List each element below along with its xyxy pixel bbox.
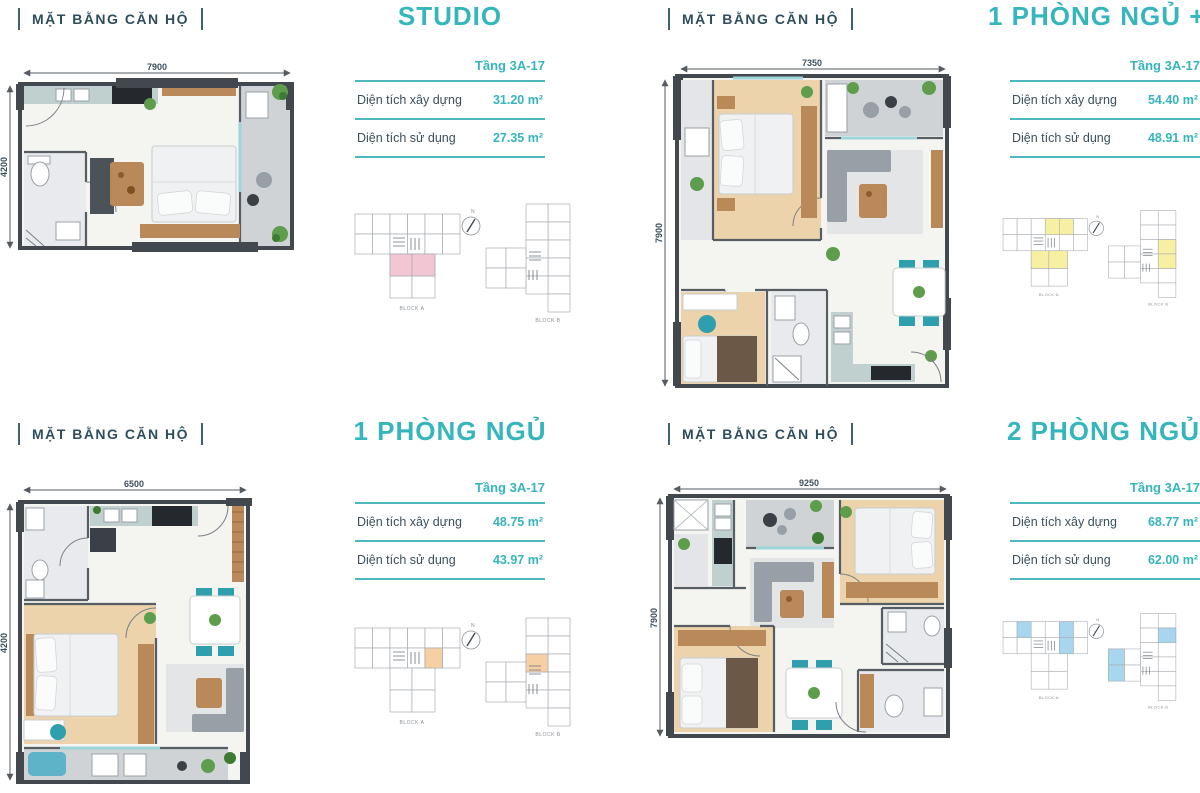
floor-plan-2br: 9250 7900 (650, 478, 960, 750)
floor-label: Tầng 3A-17 (355, 58, 545, 80)
unit-title-1br: 1 PHÒNG NGỦ (330, 416, 570, 447)
dim-width-label: 6500 (124, 479, 144, 489)
block-b-plan: BLOCK B (1108, 614, 1176, 710)
spec-row-usable: Diện tích sử dụng 43.97 m² (355, 540, 545, 580)
block-b-label: BLOCK B (1148, 704, 1168, 709)
studio-plan-drawing (16, 78, 294, 252)
svg-text:N: N (1096, 617, 1099, 622)
block-a-label: BLOCK A (1039, 695, 1059, 700)
section-label-1br: MẶT BẰNG CĂN HỘ (18, 423, 203, 445)
block-b-label: BLOCK B (535, 318, 560, 324)
2br-plan-drawing (666, 496, 952, 736)
usable-area-label: Diện tích sử dụng (1012, 131, 1111, 145)
section-label-studio: MẶT BẰNG CĂN HỘ (18, 8, 203, 30)
svg-text:N: N (471, 209, 475, 215)
spec-table-2br: Tầng 3A-17 Diện tích xây dựng 68.77 m² D… (1010, 480, 1200, 580)
built-area-value: 54.40 m² (1148, 93, 1198, 107)
spec-row-usable: Diện tích sử dụng 27.35 m² (355, 118, 545, 158)
floor-label: Tầng 3A-17 (1010, 480, 1200, 502)
block-b-plan: BLOCK B (1108, 211, 1176, 307)
block-b-label: BLOCK B (535, 732, 560, 738)
coffee-table-icon (110, 162, 144, 206)
bed2-icon (683, 336, 757, 382)
spec-row-built: Diện tích xây dựng 54.40 m² (1010, 80, 1200, 118)
spec-row-usable: Diện tích sử dụng 48.91 m² (1010, 118, 1200, 158)
compass-icon: N (462, 623, 480, 649)
spec-row-usable: Diện tích sử dụng 62.00 m² (1010, 540, 1200, 580)
built-area-label: Diện tích xây dựng (1012, 93, 1117, 107)
spec-table-1br: Tầng 3A-17 Diện tích xây dựng 48.75 m² D… (355, 480, 545, 580)
bed-master-icon (855, 508, 935, 574)
usable-area-value: 27.35 m² (493, 131, 543, 145)
compass-icon: N (1089, 214, 1103, 236)
dim-height-label: 7900 (655, 223, 664, 243)
compass-icon: N (462, 209, 480, 235)
block-b-plan: BLOCK B (486, 618, 570, 738)
block-a-plan: BLOCK A (355, 214, 460, 312)
spec-table-studio: Tầng 3A-17 Diện tích xây dựng 31.20 m² D… (355, 58, 545, 158)
svg-text:N: N (1096, 214, 1099, 219)
block-a-plan: BLOCK A (1003, 622, 1087, 700)
usable-area-value: 43.97 m² (493, 553, 543, 567)
shaft-icon (674, 500, 708, 530)
block-a-label: BLOCK A (1039, 292, 1059, 297)
compass-icon: N (1089, 617, 1103, 639)
dim-height-label: 7900 (650, 608, 659, 628)
section-label-1br-plus: MẶT BẰNG CĂN HỘ (668, 8, 853, 30)
dim-width-label: 9250 (799, 478, 819, 488)
built-area-value: 31.20 m² (493, 93, 543, 107)
spec-table-1br-plus: Tầng 3A-17 Diện tích xây dựng 54.40 m² D… (1010, 58, 1200, 158)
built-area-value: 68.77 m² (1148, 515, 1198, 529)
svg-text:N: N (471, 623, 475, 629)
bed-icon (26, 634, 118, 716)
built-area-value: 48.75 m² (493, 515, 543, 529)
floor-plan-1br: 6500 4200 (0, 478, 260, 793)
key-plan-2br: BLOCK A N BLOCK B (995, 608, 1200, 718)
block-a-label: BLOCK A (400, 720, 425, 726)
block-a-label: BLOCK A (400, 306, 425, 312)
dim-height-label: 4200 (0, 633, 9, 653)
block-b-plan: BLOCK B (486, 204, 570, 324)
floorplan-sheet: { "shared": { "section_label": "MẶT BẰNG… (0, 0, 1200, 793)
section-label-2br: MẶT BẰNG CĂN HỘ (668, 423, 853, 445)
bed-icon (719, 114, 793, 194)
dim-width-label: 7350 (802, 58, 822, 68)
block-a-plan: BLOCK A (355, 628, 460, 726)
spec-row-built: Diện tích xây dựng 48.75 m² (355, 502, 545, 540)
built-area-label: Diện tích xây dựng (357, 515, 462, 529)
spec-row-built: Diện tích xây dựng 31.20 m² (355, 80, 545, 118)
usable-area-value: 48.91 m² (1148, 131, 1198, 145)
dim-width-label: 7900 (147, 62, 167, 72)
block-a-plan: BLOCK A (1003, 219, 1087, 297)
unit-title-studio: STUDIO (355, 1, 545, 32)
bed2-icon (680, 658, 758, 728)
key-plan-1br: BLOCK A N BLOCK B (345, 612, 600, 747)
block-b-label: BLOCK B (1148, 301, 1168, 306)
bed-icon (140, 146, 240, 238)
floor-plan-studio: 7900 4200 (0, 62, 305, 258)
built-area-label: Diện tích xây dựng (1012, 515, 1117, 529)
1br-plan-drawing (16, 498, 252, 784)
unit-title-2br: 2 PHÒNG NGỦ (985, 416, 1200, 447)
1br-plus-plan-drawing (673, 76, 951, 386)
usable-area-value: 62.00 m² (1148, 553, 1198, 567)
dim-height-label: 4200 (0, 157, 9, 177)
usable-area-label: Diện tích sử dụng (357, 553, 456, 567)
key-plan-studio: BLOCK A N BLOCK B (345, 198, 600, 333)
built-area-label: Diện tích xây dựng (357, 93, 462, 107)
usable-area-label: Diện tích sử dụng (1012, 553, 1111, 567)
unit-title-1br-plus: 1 PHÒNG NGỦ + (988, 1, 1200, 32)
floor-plan-1br-plus: 7350 7900 (655, 58, 955, 396)
floor-label: Tầng 3A-17 (355, 480, 545, 502)
key-plan-1br-plus: BLOCK A N BLOCK B (995, 205, 1200, 315)
dining-table-icon (893, 260, 945, 326)
spec-row-built: Diện tích xây dựng 68.77 m² (1010, 502, 1200, 540)
usable-area-label: Diện tích sử dụng (357, 131, 456, 145)
floor-label: Tầng 3A-17 (1010, 58, 1200, 80)
